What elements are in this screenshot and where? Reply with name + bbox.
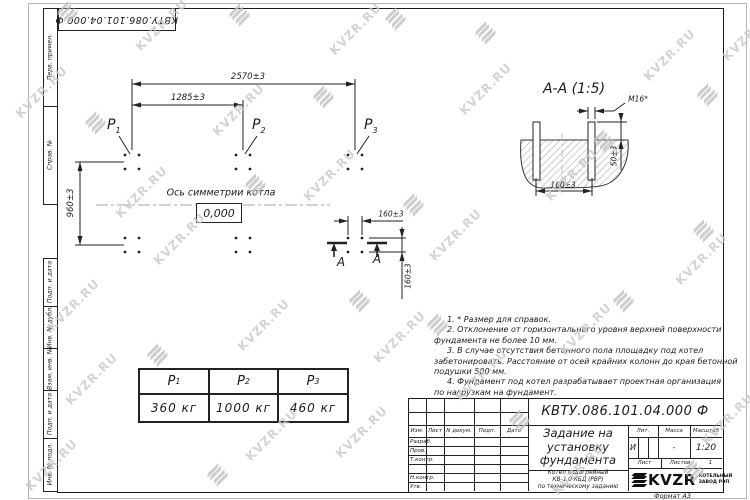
margin-field-podp-data-2: Подп. и дата bbox=[47, 393, 54, 435]
title-block-doc-number: КВТУ.086.101.04.000 Ф bbox=[528, 398, 722, 425]
note-line: забетонировать. Расстояние от осей крайн… bbox=[434, 357, 720, 367]
margin-field-inv-dubl: Инв. № дубл. bbox=[47, 306, 54, 348]
col-header-podp: Подп. bbox=[474, 425, 500, 437]
level-mark: 0,000 bbox=[196, 203, 242, 223]
sheets-label: Листов bbox=[661, 458, 699, 468]
col-header-izm: Изм. bbox=[408, 425, 426, 437]
note-line: 1. * Размер для справок. bbox=[434, 315, 720, 325]
drawing-sheet: КВТУ.086.101.04.000 Ф Перв. примен. Спра… bbox=[0, 0, 750, 500]
col-header-data: Дата bbox=[500, 425, 528, 437]
scale-value: 1:20 bbox=[690, 437, 722, 458]
notes-block: 1. * Размер для справок. 2. Отклонение о… bbox=[434, 315, 720, 398]
col-header-list: Лист bbox=[426, 425, 444, 437]
note-line: фундамента не более 10 мм. bbox=[434, 336, 720, 346]
note-line: 4. Фундамент под котел разрабатывает про… bbox=[434, 377, 720, 387]
margin-field-inv-podl: Инв. № подл. bbox=[47, 443, 54, 486]
row-utv: Утв. bbox=[408, 482, 446, 491]
load-table-header-p1: P1 bbox=[139, 369, 209, 394]
point-label-p2: P2 bbox=[252, 117, 266, 135]
title-block-title: Задание на установку фундамента bbox=[528, 425, 628, 470]
logo-text: KVZR bbox=[648, 471, 696, 489]
load-table-header-p3: P3 bbox=[278, 369, 348, 394]
load-table-value-p1: 360 кг bbox=[139, 394, 209, 422]
margin-field-vzam-inv: Взам. инв. № bbox=[47, 348, 54, 390]
dim-label-1285: 1285±3 bbox=[171, 93, 205, 103]
row-razrab: Разраб. bbox=[408, 437, 446, 446]
load-table: P1 P2 P3 360 кг 1000 кг 460 кг bbox=[138, 368, 349, 423]
dim-label-160-vertical: 160±3 bbox=[404, 263, 413, 288]
note-line: 2. Отклонение от горизонтального уровня … bbox=[434, 325, 720, 335]
manufacturer-logo: KVZR КОТЕЛЬНЫЙ ЗАВОД РЭП bbox=[629, 468, 722, 491]
point-label-p3: P3 bbox=[364, 117, 378, 135]
dim-label-50: 50±3 bbox=[610, 146, 619, 167]
dim-label-160-horizontal: 160±3 bbox=[378, 210, 403, 219]
col-header-dokum: N докум. bbox=[444, 425, 474, 437]
section-letter-right: А bbox=[373, 252, 381, 266]
point-label-p1: P1 bbox=[107, 117, 121, 135]
load-table-header-p2: P2 bbox=[209, 369, 278, 394]
note-line: 3. В случае отсутствия бетонного пола пл… bbox=[434, 346, 720, 356]
mass-header: Масса bbox=[658, 425, 690, 437]
dim-label-960: 960±3 bbox=[66, 189, 76, 218]
dim-label-2570: 2570±3 bbox=[231, 72, 265, 82]
section-letter-left: А bbox=[337, 255, 345, 269]
top-stamp: КВТУ.086.101.04.000 Ф bbox=[58, 8, 176, 31]
row-prov: Пров. bbox=[408, 446, 446, 455]
title-block-subtitle: Котел водогрейный КВ-1,0 КБД (РВР) по те… bbox=[528, 470, 628, 491]
load-table-value-p2: 1000 кг bbox=[209, 394, 278, 422]
sheets-value: 1 bbox=[699, 458, 722, 468]
top-stamp-doc-number: КВТУ.086.101.04.000 Ф bbox=[55, 14, 178, 25]
note-line: по нагрузкам на фундамент. bbox=[434, 388, 720, 398]
load-table-value-p3: 460 кг bbox=[278, 394, 348, 422]
row-nkontr: Н.контр. bbox=[408, 473, 446, 482]
row-empty bbox=[408, 464, 446, 473]
scale-header: Масштаб bbox=[690, 425, 722, 437]
logo-caption: КОТЕЛЬНЫЙ ЗАВОД РЭП bbox=[699, 474, 733, 485]
dim-label-160-section: 160±3 bbox=[550, 181, 575, 190]
margin-field-podp-data-1: Подп. и дата bbox=[47, 261, 54, 303]
lit-header: Лит. bbox=[628, 425, 658, 437]
row-tkontr: Т.контр. bbox=[408, 455, 446, 464]
bolt-thread-label: М16* bbox=[628, 95, 648, 104]
kvzr-logo-icon bbox=[633, 472, 646, 487]
format-label: Формат А3 bbox=[645, 491, 700, 500]
lit-value: И bbox=[628, 437, 638, 458]
sheet-label: Лист bbox=[628, 458, 661, 468]
margin-field-perv-primen: Перв. примен. bbox=[47, 34, 54, 80]
mass-value: - bbox=[658, 437, 690, 458]
section-title: А-А (1:5) bbox=[543, 81, 605, 97]
axis-label: Ось симметрии котла bbox=[167, 188, 276, 199]
note-line: подушки 500 мм. bbox=[434, 367, 720, 377]
margin-field-sprav-n: Справ. № bbox=[47, 140, 54, 170]
